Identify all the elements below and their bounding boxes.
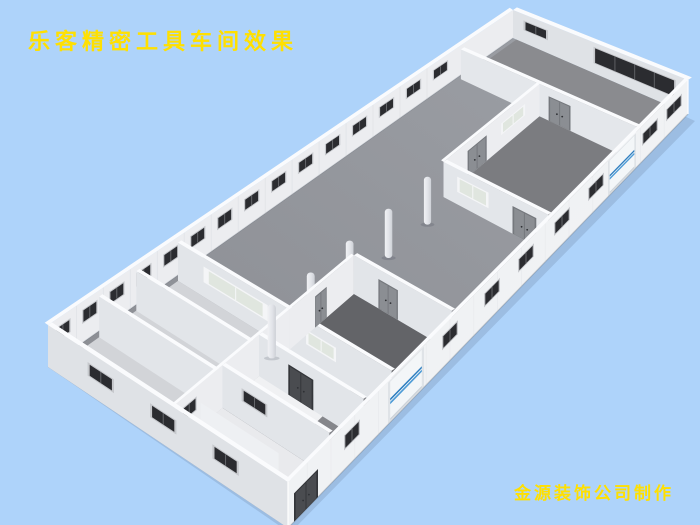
- page-title: 乐客精密工具车间效果: [28, 24, 298, 56]
- render-canvas: 乐客精密工具车间效果 金源装饰公司制作: [0, 0, 700, 525]
- workshop-3d-scene: [0, 0, 700, 525]
- credit-watermark: 金源装饰公司制作: [514, 479, 674, 504]
